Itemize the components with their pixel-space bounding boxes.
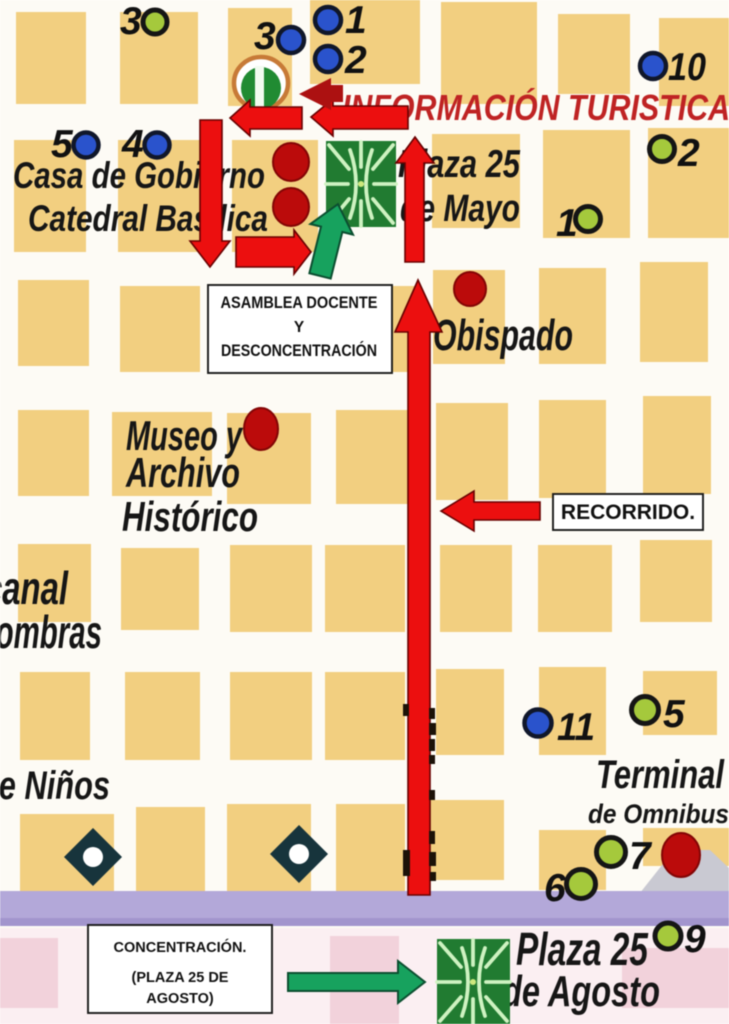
svg-text:CONCENTRACIÓN.: CONCENTRACIÓN. [114, 938, 247, 956]
svg-text:2: 2 [677, 132, 700, 175]
svg-text:5: 5 [51, 123, 74, 166]
svg-text:9: 9 [684, 918, 706, 961]
svg-text:DESCONCENTRACIÓN: DESCONCENTRACIÓN [221, 341, 377, 360]
svg-text:(PLAZA 25 DE: (PLAZA 25 DE [132, 970, 229, 986]
svg-text:ASAMBLEA DOCENTE: ASAMBLEA DOCENTE [221, 294, 378, 312]
svg-text:de Agosto: de Agosto [502, 967, 660, 1016]
svg-text:Archivo: Archivo [125, 449, 240, 496]
svg-text:RECORRIDO.: RECORRIDO. [561, 501, 695, 524]
svg-text:Obispado: Obispado [433, 311, 573, 360]
svg-text:Catedral Basílica: Catedral Basílica [28, 198, 268, 239]
svg-text:Sombras: Sombras [0, 606, 102, 658]
svg-text:11: 11 [557, 706, 595, 749]
svg-text:Histórico: Histórico [122, 493, 258, 540]
svg-text:de Omnibus: de Omnibus [588, 799, 729, 829]
svg-text:6: 6 [544, 867, 566, 910]
svg-text:Terminal: Terminal [596, 753, 725, 797]
svg-text:Y: Y [294, 319, 305, 336]
svg-text:7: 7 [629, 835, 653, 878]
svg-text:3: 3 [254, 15, 276, 58]
svg-text:2: 2 [344, 39, 367, 82]
svg-text:4: 4 [121, 123, 144, 166]
svg-text:10: 10 [668, 46, 706, 89]
svg-text:de Niños: de Niños [0, 764, 110, 808]
svg-text:5: 5 [663, 693, 686, 736]
svg-text:3: 3 [120, 0, 142, 43]
svg-text:AGOSTO): AGOSTO) [146, 991, 214, 1007]
svg-text:1: 1 [345, 0, 367, 42]
